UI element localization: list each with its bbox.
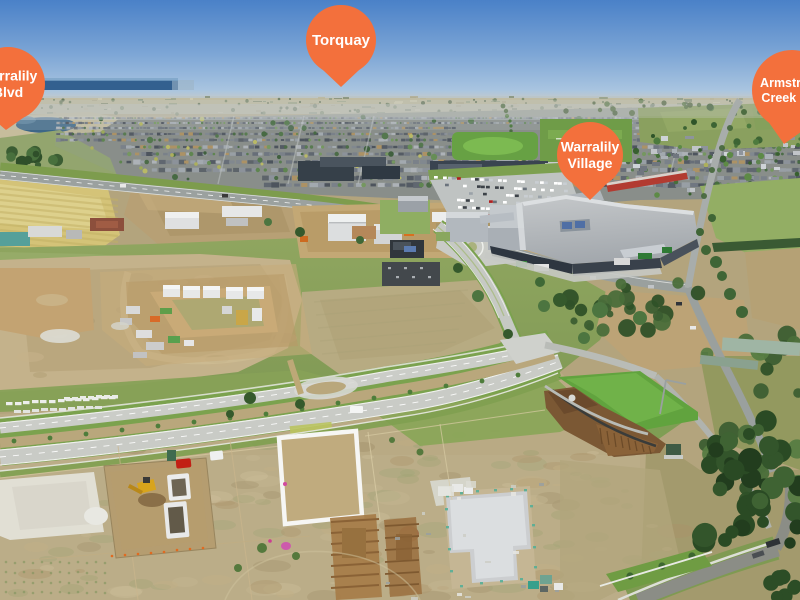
svg-text:Blvd: Blvd [0,84,23,100]
svg-text:Warralily: Warralily [0,68,38,84]
svg-text:Warralily: Warralily [561,139,620,155]
svg-text:Village: Village [568,155,613,171]
svg-text:Creek Sch: Creek Sch [761,91,800,105]
svg-text:Torquay: Torquay [312,32,371,49]
svg-text:Armstrong: Armstrong [760,76,800,90]
